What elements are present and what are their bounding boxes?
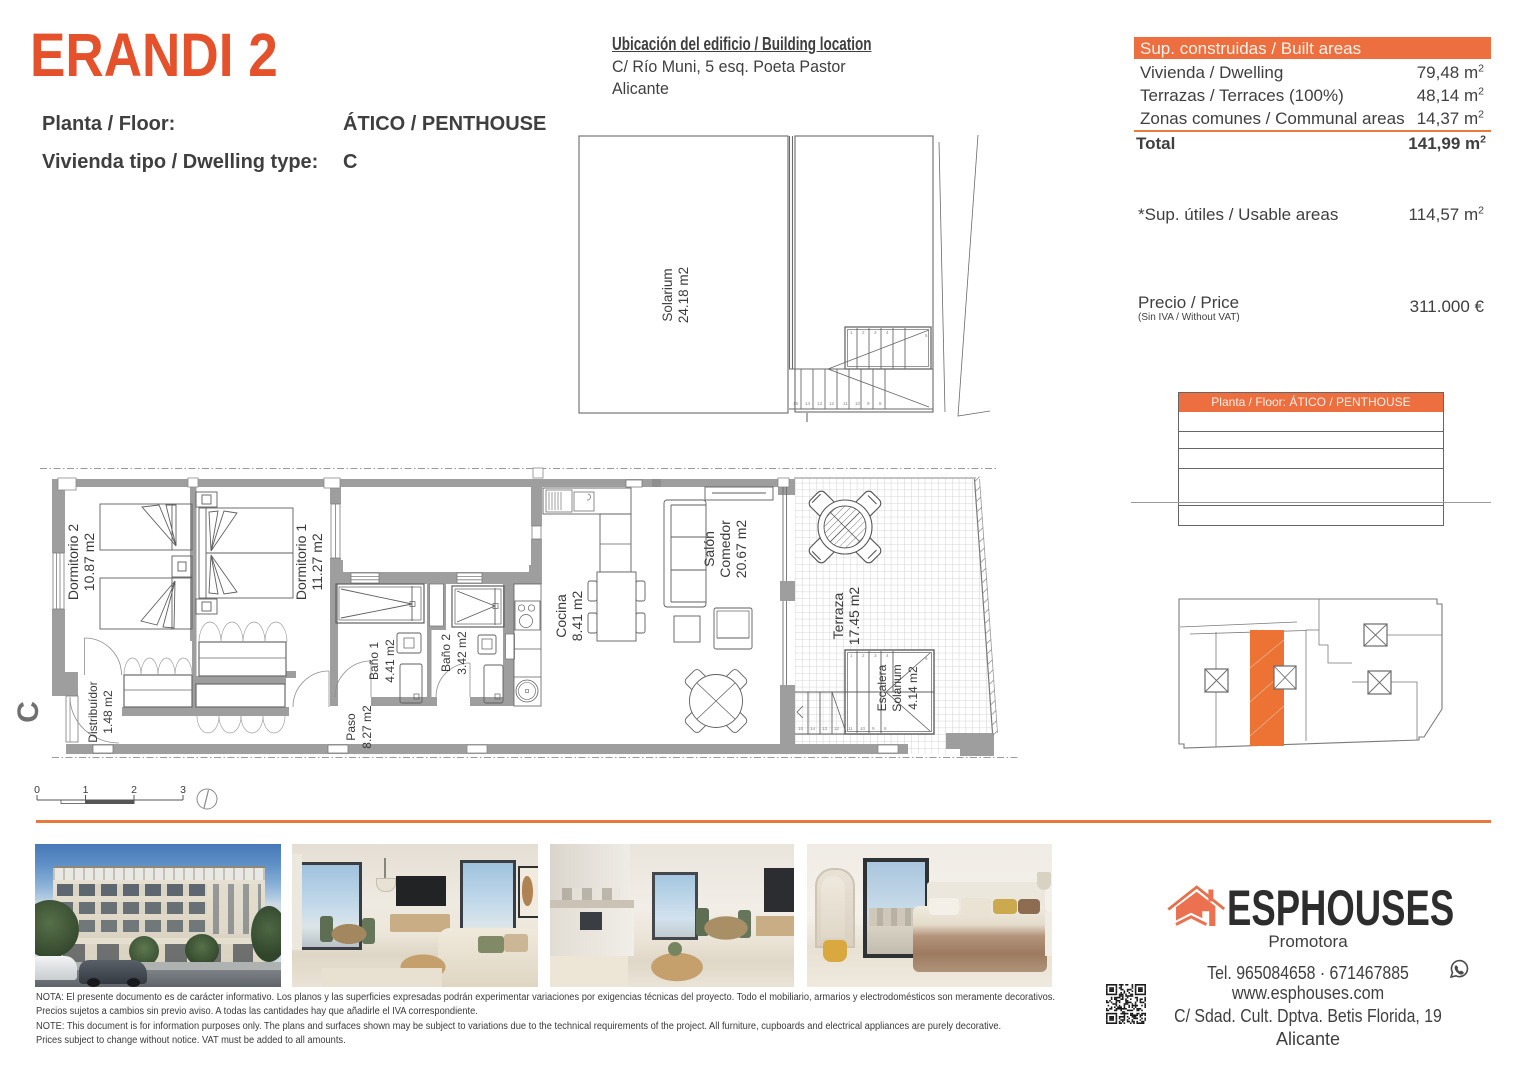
svg-text:1: 1 (850, 653, 853, 658)
svg-text:0: 0 (34, 784, 40, 796)
svg-text:Solarium: Solarium (890, 664, 904, 711)
svg-text:2: 2 (862, 330, 865, 335)
svg-text:1: 1 (850, 330, 853, 335)
svg-text:10: 10 (860, 726, 866, 731)
svg-text:8: 8 (879, 401, 882, 406)
svg-text:3: 3 (874, 330, 877, 335)
svg-text:13: 13 (817, 401, 823, 406)
svg-text:14: 14 (810, 726, 816, 731)
svg-text:8.27 m2: 8.27 m2 (360, 705, 374, 749)
svg-text:11.27 m2: 11.27 m2 (309, 533, 325, 591)
svg-text:11: 11 (843, 401, 848, 406)
svg-text:3.42 m2: 3.42 m2 (455, 631, 469, 675)
svg-text:12: 12 (834, 726, 840, 731)
svg-text:8.41 m2: 8.41 m2 (569, 590, 585, 641)
svg-text:10.87 m2: 10.87 m2 (81, 533, 97, 592)
svg-text:11: 11 (848, 726, 853, 731)
svg-text:Solarium: Solarium (660, 268, 675, 321)
svg-text:15: 15 (793, 401, 799, 406)
svg-text:2: 2 (131, 784, 137, 796)
svg-text:Dormitorio 1: Dormitorio 1 (293, 524, 309, 600)
svg-text:Cocina: Cocina (553, 594, 569, 638)
svg-text:6: 6 (925, 333, 928, 338)
svg-text:2: 2 (862, 653, 865, 658)
svg-text:9: 9 (872, 726, 875, 731)
svg-text:4.14 m2: 4.14 m2 (906, 666, 920, 710)
svg-text:Distribuídor: Distribuídor (86, 681, 100, 742)
svg-text:8: 8 (884, 726, 887, 731)
svg-text:9: 9 (867, 401, 870, 406)
svg-text:Baño 1: Baño 1 (367, 642, 381, 680)
svg-text:Baño 2: Baño 2 (439, 634, 453, 672)
svg-text:Terraza: Terraza (830, 592, 846, 639)
svg-text:13: 13 (822, 726, 828, 731)
svg-text:4: 4 (886, 653, 889, 658)
svg-text:1: 1 (83, 784, 89, 796)
svg-text:3: 3 (874, 653, 877, 658)
svg-text:Comedor: Comedor (717, 520, 733, 578)
svg-text:C: C (12, 701, 45, 723)
svg-text:10: 10 (855, 401, 861, 406)
svg-text:Escalera: Escalera (875, 664, 889, 711)
svg-text:24.18 m2: 24.18 m2 (676, 267, 691, 323)
svg-text:4: 4 (886, 330, 889, 335)
svg-text:Paso: Paso (344, 713, 358, 741)
svg-text:Dormitorio 2: Dormitorio 2 (65, 524, 81, 600)
svg-text:17.45 m2: 17.45 m2 (846, 587, 862, 646)
svg-text:1.48 m2: 1.48 m2 (101, 690, 115, 734)
svg-text:3: 3 (180, 784, 186, 796)
svg-text:4.41 m2: 4.41 m2 (383, 639, 397, 683)
svg-text:14: 14 (805, 401, 811, 406)
svg-text:15: 15 (798, 726, 804, 731)
svg-text:20.67 m2: 20.67 m2 (733, 520, 749, 579)
svg-text:6: 6 (925, 656, 928, 661)
svg-text:12: 12 (829, 401, 835, 406)
svg-text:Salón: Salón (701, 531, 717, 567)
